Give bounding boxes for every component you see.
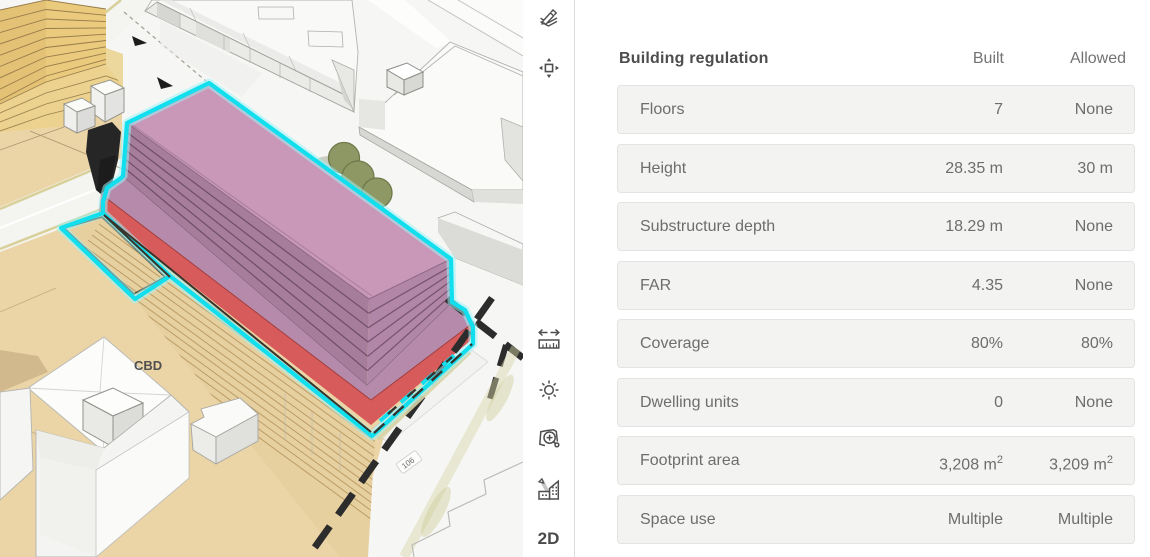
svg-text:CBD: CBD: [134, 358, 162, 373]
